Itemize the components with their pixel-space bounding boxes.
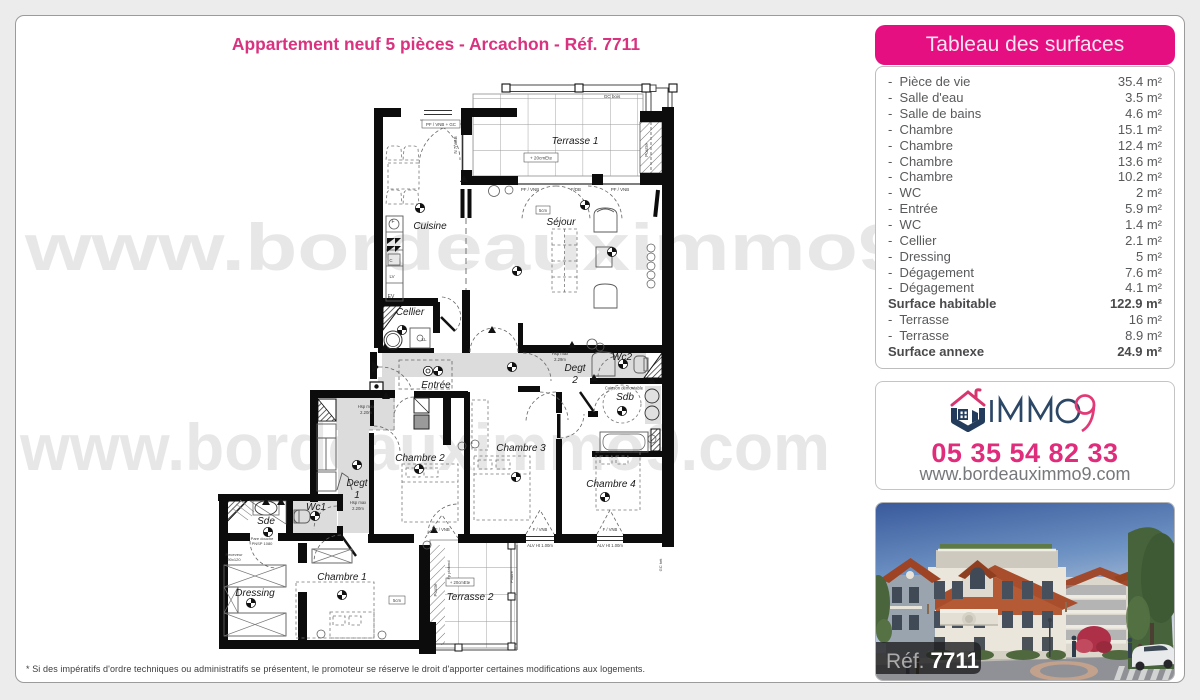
svg-text:F / VNB: F / VNB [603, 527, 618, 532]
svg-text:Caisson démontable: Caisson démontable [605, 386, 644, 391]
svg-text:Chambre 2: Chambre 2 [395, 453, 445, 464]
svg-text:Cellier: Cellier [396, 307, 425, 318]
svg-text:PF / VNB: PF / VNB [521, 187, 539, 192]
svg-text:LV: LV [389, 274, 394, 279]
svg-text:Cuisine: Cuisine [413, 221, 447, 232]
svg-text:GC bois: GC bois [604, 94, 621, 99]
svg-text:+ 20cmEte: + 20cmEte [450, 580, 471, 585]
svg-text:Chambre 1: Chambre 1 [317, 572, 366, 583]
svg-text:Chambre 3: Chambre 3 [496, 443, 546, 454]
svg-text:Wc1: Wc1 [306, 502, 326, 513]
svg-text:Fp plafond: Fp plafond [446, 561, 451, 580]
svg-text:Terrasse 1: Terrasse 1 [552, 136, 599, 147]
svg-text:PF / VNB: PF / VNB [432, 527, 450, 532]
svg-text:90x120: 90x120 [227, 557, 241, 562]
svg-text:Degt: Degt [346, 478, 368, 489]
svg-text:ALV Ht 1.00m: ALV Ht 1.00m [527, 543, 553, 548]
svg-text:LL: LL [421, 337, 427, 342]
svg-text:2.20m: 2.20m [352, 506, 364, 511]
svg-text:Réf. 7711: Réf. 7711 [886, 648, 979, 673]
svg-text:Hsp max: Hsp max [358, 404, 375, 409]
svg-text:Entrée: Entrée [421, 380, 451, 391]
svg-text:GC hét: GC hét [658, 558, 663, 572]
svg-text:Wc2: Wc2 [612, 352, 632, 363]
svg-text:Hsp max: Hsp max [552, 351, 569, 356]
svg-text:ALV Ht 1.00m: ALV Ht 1.00m [597, 543, 623, 548]
svg-text:Chambre 4: Chambre 4 [586, 479, 636, 490]
svg-text:Poutre: Poutre [509, 570, 514, 583]
svg-text:Sde: Sde [257, 516, 275, 527]
svg-text:2.20m: 2.20m [360, 410, 372, 415]
svg-text:F: F [391, 219, 394, 225]
svg-text:F / VNB: F / VNB [533, 527, 548, 532]
svg-text:Terrasse 2: Terrasse 2 [447, 592, 494, 603]
svg-text:PF / VNB + GC: PF / VNB + GC [426, 122, 456, 127]
svg-text:2.29m: 2.29m [554, 357, 566, 362]
svg-text:Degt: Degt [564, 363, 586, 374]
svg-text:5cm: 5cm [539, 208, 547, 213]
svg-text:Sdb: Sdb [616, 392, 634, 403]
svg-text:5cm: 5cm [393, 598, 401, 603]
svg-text:2: 2 [571, 375, 578, 386]
svg-text:Dressing: Dressing [235, 588, 275, 599]
svg-text:N 7/VGB: N 7/VGB [453, 136, 458, 153]
svg-text:PNSP 1080: PNSP 1080 [252, 541, 274, 546]
svg-text:Séjour: Séjour [547, 217, 577, 228]
svg-text:PF / VNB: PF / VNB [611, 187, 629, 192]
svg-text:Poutre: Poutre [644, 143, 649, 157]
svg-text:EV: EV [388, 294, 395, 300]
svg-text:+ 20cmEte: + 20cmEte [530, 156, 553, 161]
svg-text:Poutre: Poutre [433, 583, 438, 596]
svg-text:F/DB: F/DB [571, 187, 581, 192]
svg-text:C: C [389, 258, 392, 263]
svg-text:Hsp max: Hsp max [350, 500, 367, 505]
